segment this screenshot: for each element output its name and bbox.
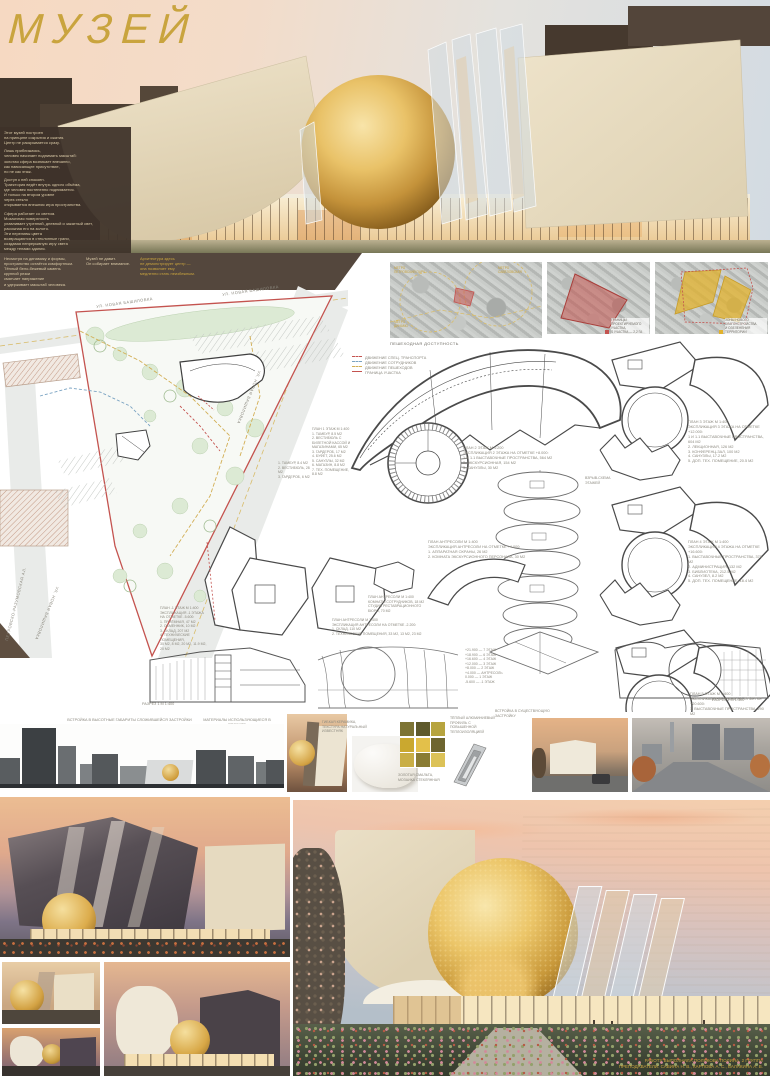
elevation-row-label: ВСТРОЙКА В ВЫСОТНЫЕ ГАБАРИТЫ СЛОЖИВШЕЙСЯ…: [62, 718, 197, 723]
legend-chip-red: [605, 330, 609, 334]
building-silhouette: [22, 728, 56, 786]
section-levels: +21.900 — 7 ЭТАЖ +18.900 — 6 ЭТАЖ +16.60…: [465, 648, 515, 684]
floor3-explication: ПЛАН 3 ЭТАЖ М 1:400 ЭКСПЛИКАЦИЯ 3 ЭТАЖА …: [688, 420, 768, 464]
metro-label: МЕТРО ДИНАМО: [394, 320, 408, 328]
aerial-map-landscaping: ЗОНЫ НОВОГО БЛАГОУСТРОЙСТВА И ОЗЕЛЕНЕНИЯ…: [655, 262, 768, 334]
right-stone-volume: [518, 40, 748, 228]
stone-box: [205, 844, 285, 933]
foreground-garden: [0, 939, 290, 957]
band-column-2: Музей не давит. Он собирает внимание.: [86, 256, 136, 266]
legend-label: ДВИЖЕНИЕ СОТРУДНИКОВ: [365, 361, 416, 365]
intro-paragraph: Лишь приближаясь, человек начинает подни…: [4, 148, 127, 174]
sphere-in-elevation: [162, 764, 179, 781]
intro-text-block: Этот музей построен на принципе сокрытия…: [0, 127, 131, 253]
legend-label: ГРАНИЦА УЧАСТКА: [365, 371, 401, 375]
credits: РАБОТУ ВЫПОЛНИЛА ПОЛЯКОВА ПОЛИНА, 2 ГРУП…: [543, 1058, 763, 1071]
legend-label: ДВИЖЕНИЕ ПЕШЕХОДОВ: [365, 366, 413, 370]
round-hall-plan: [388, 423, 468, 503]
section1-label: РАЗРЕЗ 1 М 1:400: [142, 702, 174, 707]
legend-dash-blue: [352, 361, 362, 362]
aerial-map-site-boundary: ГРАНИЦЫ ПРОЕКТИРУЕМОГО УЧАСТКА, S УЧАСТК…: [547, 262, 650, 334]
context-photo-1: [532, 718, 628, 792]
movement-legend: ДВИЖЕНИЕ СПЕЦ. ТРАНСПОРТА ДВИЖЕНИЕ СОТРУ…: [352, 356, 442, 376]
context-photo-2: [632, 718, 770, 792]
maps-caption: ПЕШЕХОДНАЯ ДОСТУПНОСТЬ: [390, 341, 459, 346]
floor4-explication: ПЛАН 4 ЭТАЖ М 1:400 ЭКСПЛИКАЦИЯ 4 ЭТАЖА …: [688, 540, 768, 584]
exploded-axon: [490, 470, 598, 674]
render-left-large: [0, 797, 290, 957]
section2-label: РАЗРЕЗ 2 М 1:400: [712, 698, 744, 703]
section-3: [615, 642, 768, 698]
mezz3-explication: ПЛАН АНТРЕСОЛИ М 1:400 КОМНАТЫ СОТРУДНИК…: [368, 595, 426, 613]
page-title: МУЗЕЙ: [4, 8, 204, 50]
mosaic-tile: [400, 722, 414, 736]
render-thumb-2: [2, 1028, 100, 1076]
aerial-map-accessibility: МЕТРО ПЕТРОВСКИЙ ПАРК МЕТРО САВЁЛОВСКАЯ …: [390, 262, 542, 338]
legend-dash-gold: [352, 366, 362, 367]
render-thumb-1: [2, 962, 100, 1024]
floor2-explication: ПЛАН 2 ЭТАЖ М 1:200 ЭКСПЛИКАЦИЯ 2 ЭТАЖА …: [463, 446, 565, 471]
material-mosaic-sample: [400, 722, 446, 768]
material2-label: ЗОЛОТАЯ СМАЛЬТА, МОЗАИКА СТЕКЛЯННАЯ: [398, 773, 454, 782]
legend-chip-yellow: [719, 330, 723, 334]
legend-line-red: [352, 371, 362, 372]
mezz2-explication: ПЛАН АНТРЕСОЛИ М 1:400 ЭКСПЛИКАЦИЯ АНТРЕ…: [332, 618, 427, 636]
presentation-board: МУЗЕЙ Этот музей построен на принципе со…: [0, 0, 770, 1080]
hero-render: МУЗЕЙ Этот музей построен на принципе со…: [0, 0, 770, 253]
floor5-explication: ПЛАН 5 ЭТАЖ М 1:400 ЭКСПЛИКАЦИЯ 5 ЭТАЖА …: [690, 692, 768, 717]
metro-label: МЕТРО ПЕТРОВСКИЙ ПАРК: [394, 266, 425, 274]
material1-label: ГИБКАЯ КЕРАМИКА, ТЕКСТУРА НАТУРАЛЬНЫЙ ИЗ…: [322, 720, 384, 734]
axon-label: ВЗРЫВ-СХЕМА ЭТАЖЕЙ: [585, 476, 645, 485]
map3-legend: ЗОНЫ НОВОГО БЛАГОУСТРОЙСТВА И ОЗЕЛЕНЕНИЯ…: [725, 318, 767, 335]
basement-explication: ПЛАН -1 ЭТАЖ М 1:400 ЭКСПЛИКАЦИЯ -1 ЭТАЖ…: [160, 606, 208, 651]
floor1b-explication: 1. ТАМБУР, 8.4 М2 2. ВЕСТИБЮЛЬ, 28 М2 3.…: [278, 461, 310, 479]
band-column-3: Архитектура здесь не демонстрирует центр…: [140, 256, 202, 276]
context-elevation: [0, 724, 284, 790]
render-right-large: РАБОТУ ВЫПОЛНИЛА ПОЛЯКОВА ПОЛИНА, 2 ГРУП…: [293, 800, 770, 1076]
legend-dash-red: [352, 356, 362, 357]
map2-legend: ГРАНИЦЫ ПРОЕКТИРУЕМОГО УЧАСТКА, S УЧАСТК…: [611, 318, 649, 335]
render-thumb-3: [104, 962, 290, 1076]
credits-teachers: ПРЕПОДАВАТЕЛИ: САВИНА Н. В., КАРПОВА А. …: [543, 1064, 763, 1070]
context-photos-label: ВСТРОЙКА В СУЩЕСТВУЮЩУЮ ЗАСТРОЙКУ: [495, 709, 575, 718]
mezz1-explication: ПЛАН АНТРЕСОЛИ М 1:400 ЭКСПЛИКАЦИЯ АНТРЕ…: [428, 540, 546, 560]
legend-label: ДВИЖЕНИЕ СПЕЦ. ТРАНСПОРТА: [365, 356, 426, 360]
material3-label: ТЁПЛЫЙ АЛЮМИНИЕВЫЙ ПРОФИЛЬ С ПОВЫШЕННОЙ …: [450, 716, 496, 734]
intro-paragraph: Этот музей построен на принципе сокрытия…: [4, 130, 127, 145]
intro-paragraph: Доступ к ней спокоен. Траектория ведёт в…: [4, 177, 127, 208]
material-profile-sample: [448, 738, 492, 792]
sphere-thumb: [289, 740, 315, 766]
intro-paragraph: Сфера работает со светом. Мозаичная пове…: [4, 211, 127, 252]
floor1-explication: ПЛАН 1 ЭТАЖ М 1:400 1. ТАМБУР, 8.5 М2 2.…: [312, 427, 354, 477]
metro-label: МЕТРО САВЁЛОВСКАЯ: [498, 266, 522, 274]
